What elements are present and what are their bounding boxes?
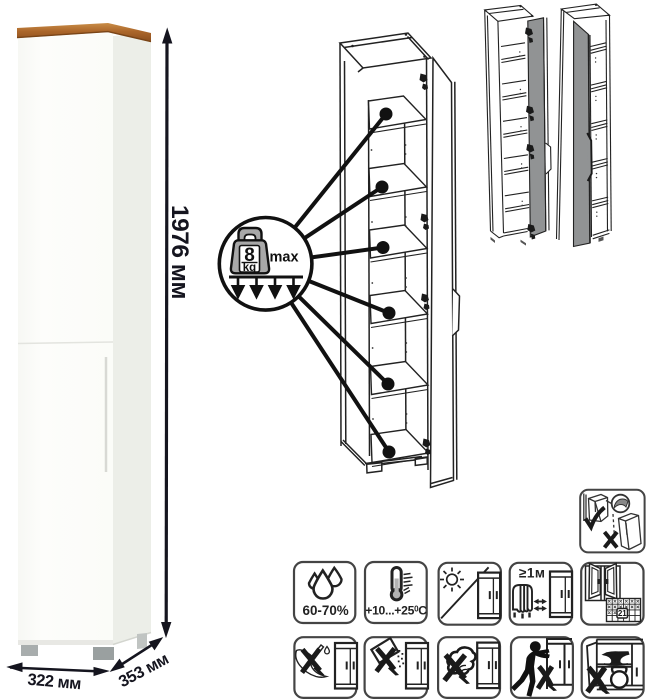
svg-text:60-70%: 60-70% bbox=[303, 603, 349, 618]
svg-text:kg: kg bbox=[243, 262, 256, 274]
svg-text:max: max bbox=[269, 250, 298, 266]
svg-text:21: 21 bbox=[618, 609, 627, 618]
svg-text:353 мм: 353 мм bbox=[116, 650, 172, 691]
svg-text:+10...+250C: +10...+250C bbox=[365, 604, 427, 618]
svg-text:≥1м: ≥1м bbox=[519, 566, 545, 581]
svg-text:1976 мм: 1976 мм bbox=[166, 205, 193, 299]
svg-text:322 мм: 322 мм bbox=[27, 671, 82, 694]
